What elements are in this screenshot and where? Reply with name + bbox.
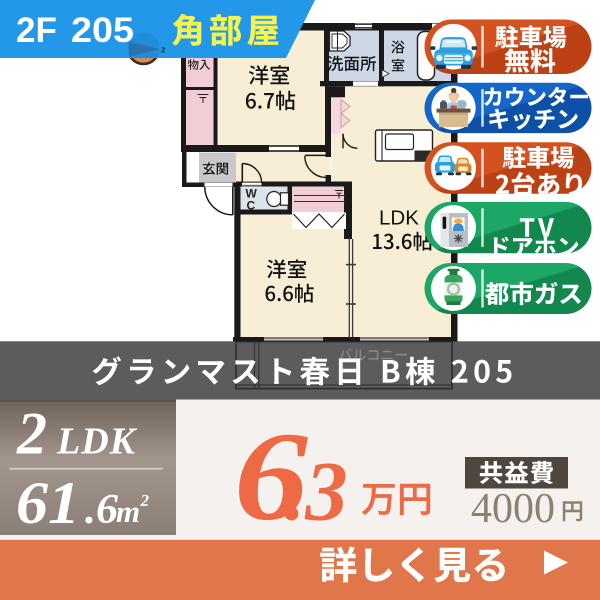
svg-text:2F: 2F <box>16 11 57 50</box>
svg-text:61: 61 <box>16 470 80 536</box>
svg-text:.6: .6 <box>85 487 118 533</box>
svg-text:205: 205 <box>71 11 134 50</box>
svg-text:2: 2 <box>16 401 47 467</box>
svg-text:LDK: LDK <box>56 421 138 463</box>
svg-text:4000: 4000 <box>471 486 555 532</box>
svg-text:m: m <box>116 494 140 529</box>
svg-text:2: 2 <box>140 491 150 510</box>
svg-text:C: C <box>247 199 256 213</box>
svg-text:LDK: LDK <box>379 207 419 230</box>
svg-text:.3: .3 <box>284 445 348 539</box>
svg-text:z: z <box>161 45 166 56</box>
